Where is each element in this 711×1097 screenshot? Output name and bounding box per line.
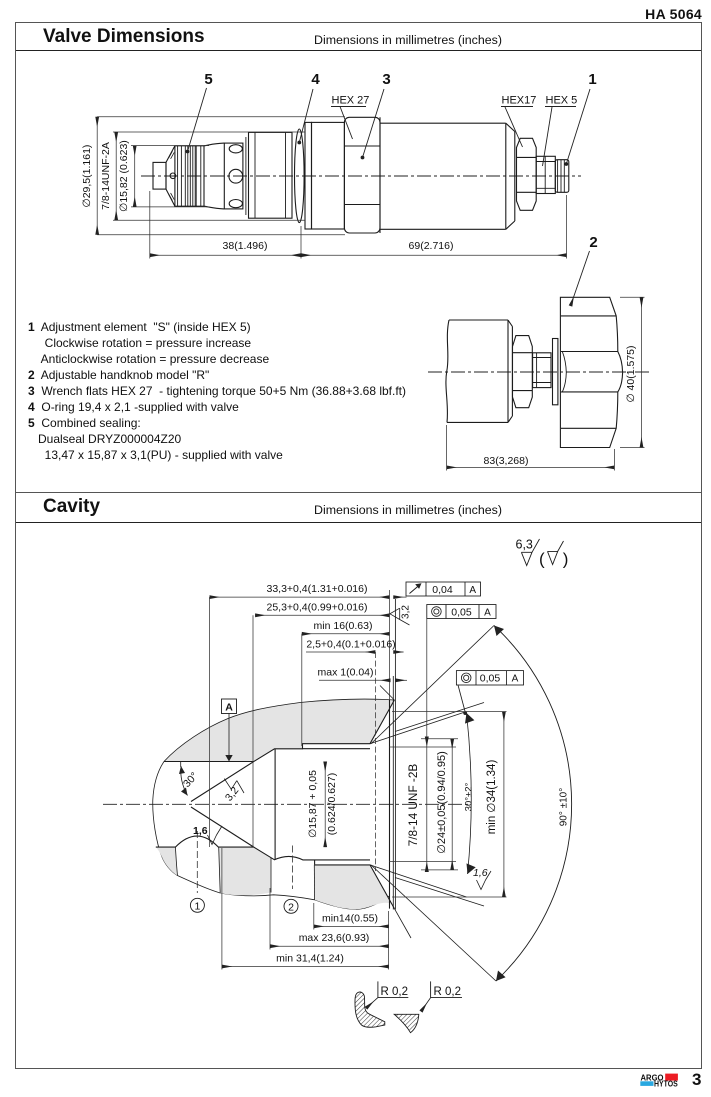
svg-text:∅29,5(1.161): ∅29,5(1.161) [81,145,93,208]
svg-text:0,05: 0,05 [480,673,501,685]
svg-text:1,6: 1,6 [473,867,488,879]
svg-text:5: 5 [204,71,212,88]
svg-text:25,3+0,4(0.99+0.016): 25,3+0,4(0.99+0.016) [266,602,367,614]
svg-text:∅24±0,05(0.94/0.95): ∅24±0,05(0.94/0.95) [436,751,448,853]
svg-text:∅ 40(1.575): ∅ 40(1.575) [625,345,637,402]
svg-text:max 23,6(0.93): max 23,6(0.93) [299,932,370,944]
svg-text:0,04: 0,04 [432,584,453,596]
svg-text:3,2: 3,2 [223,785,242,804]
svg-text:69(2.716): 69(2.716) [409,240,454,252]
svg-text:min ∅34(1.34): min ∅34(1.34) [486,760,498,835]
svg-text:R 0,2: R 0,2 [381,986,409,998]
svg-text:6,3: 6,3 [516,538,533,552]
svg-text:(0.624/0.627): (0.624/0.627) [326,773,338,835]
svg-text:HEX17: HEX17 [502,95,537,107]
svg-text:2: 2 [288,901,294,913]
svg-text:90° ±10°: 90° ±10° [559,788,570,827]
svg-text:3: 3 [382,71,390,88]
svg-text:1: 1 [588,71,596,88]
svg-text:7/8-14 UNF -2B: 7/8-14 UNF -2B [406,764,420,847]
svg-text:1,6: 1,6 [193,825,208,837]
svg-text:4: 4 [311,71,320,88]
svg-text:3,2: 3,2 [401,605,412,619]
svg-text:(: ( [539,550,545,569]
svg-text:2,5+0,4(0.1+0.016): 2,5+0,4(0.1+0.016) [306,639,395,651]
svg-text:0,05: 0,05 [451,606,472,618]
svg-text:min 16(0.63): min 16(0.63) [314,620,373,632]
svg-text:83(3,268): 83(3,268) [484,455,529,467]
svg-text:38(1.496): 38(1.496) [223,240,268,252]
svg-text:33,3+0,4(1.31+0.016): 33,3+0,4(1.31+0.016) [266,583,367,595]
svg-text:2: 2 [589,234,597,251]
svg-text:min14(0.55): min14(0.55) [322,912,378,924]
svg-text:A: A [484,607,491,618]
svg-text:A: A [225,702,233,714]
svg-text:∅15,82 (0.623): ∅15,82 (0.623) [118,140,130,212]
svg-text:R 0,2: R 0,2 [434,986,462,998]
svg-text:1: 1 [194,900,200,912]
svg-text:min 31,4(1.24): min 31,4(1.24) [276,953,344,965]
svg-text:A: A [469,585,476,596]
svg-text:HEX 5: HEX 5 [546,95,578,107]
svg-text:max 1(0.04): max 1(0.04) [317,667,373,679]
svg-text:HEX 27: HEX 27 [332,95,370,107]
svg-text:A: A [512,674,519,685]
svg-text:30°±2°: 30°±2° [464,782,475,811]
svg-text:): ) [563,550,569,569]
svg-text:∅15,87 + 0,05: ∅15,87 + 0,05 [307,770,319,838]
svg-text:7/8-14UNF-2A: 7/8-14UNF-2A [100,142,112,210]
